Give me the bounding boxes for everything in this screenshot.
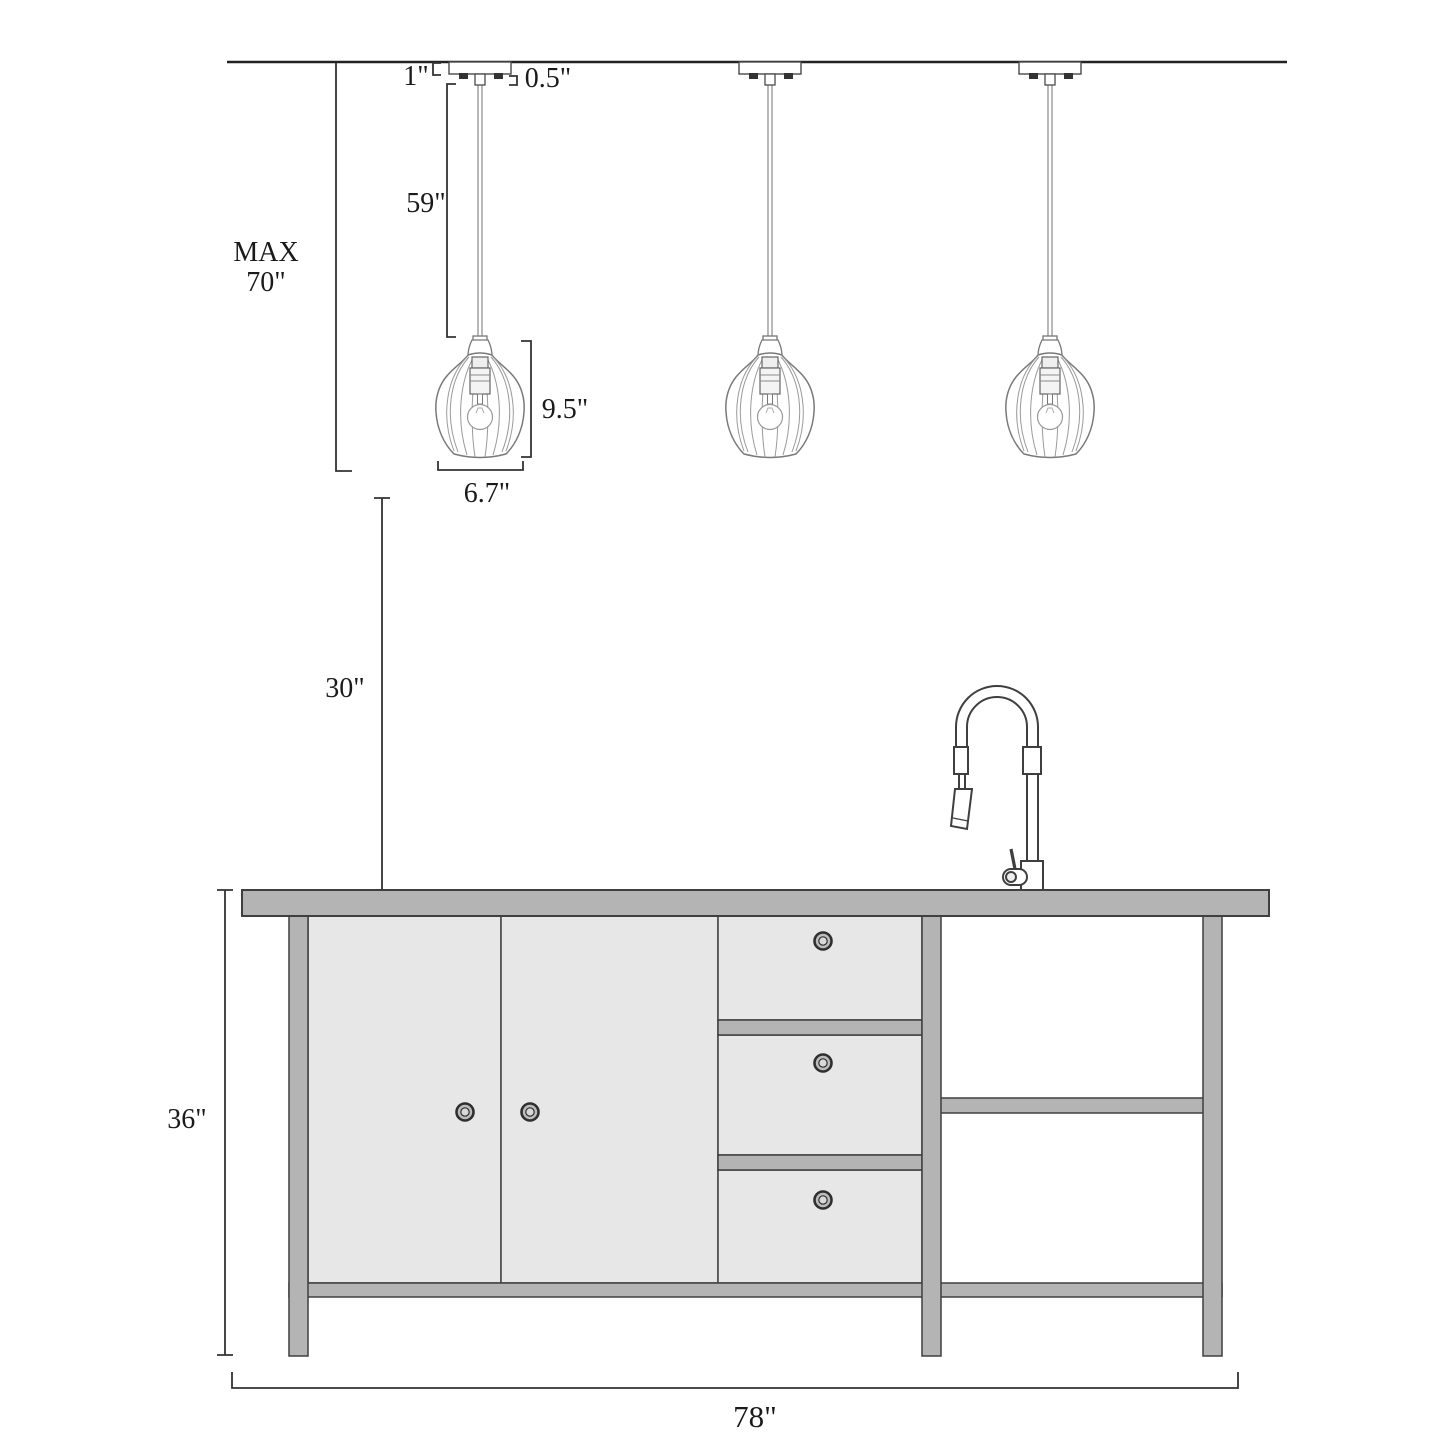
kitchen-faucet (951, 686, 1043, 890)
pendant-light-2 (726, 62, 814, 458)
countertop (242, 890, 1269, 916)
left-leg (289, 916, 308, 1356)
right-leg (1203, 916, 1222, 1356)
label-max-height-1: MAX (233, 237, 298, 268)
pendant-light-3 (1006, 62, 1094, 458)
drawer-separator-1 (718, 1020, 922, 1035)
dim-bracket-67in (438, 461, 523, 470)
bottom-rail (289, 1283, 1222, 1297)
faucet-handle-cap (1006, 872, 1016, 882)
faucet-sleeve (1023, 747, 1041, 774)
dim-line-max70 (336, 63, 352, 471)
hose (959, 774, 965, 790)
label-hang-clearance: 30" (325, 673, 364, 704)
label-cord-length: 59" (406, 188, 445, 219)
label-shade-height: 9.5" (542, 394, 588, 425)
label-island-height: 36" (167, 1104, 206, 1135)
dim-line-30in (374, 498, 390, 889)
door-knob-left (457, 1104, 474, 1121)
drawer-knob-1 (815, 933, 832, 950)
label-shade-width: 6.7" (464, 478, 510, 509)
dim-bracket-1in (433, 63, 441, 75)
pendant-light-1 (436, 62, 524, 458)
label-canopy-height: 1" (403, 61, 428, 92)
dim-line-36in (217, 890, 233, 1355)
label-island-width: 78" (733, 1399, 777, 1434)
faucet-lever (1011, 849, 1015, 869)
drawer-1 (718, 916, 922, 1020)
cabinet-door-right (501, 916, 718, 1283)
drawer-2 (718, 1035, 922, 1155)
dim-line-78in (232, 1372, 1238, 1388)
spray-head (951, 789, 972, 829)
hose-connector (954, 747, 968, 774)
cabinet-door-left (308, 916, 501, 1283)
open-shelf (936, 1098, 1208, 1113)
drawer-3 (718, 1170, 922, 1283)
label-stem-height: 0.5" (525, 63, 571, 94)
dimension-diagram: 1" 0.5" 59" MAX 70" 9.5" 6.7" 30" 36" 78… (0, 0, 1445, 1445)
middle-post (922, 916, 941, 1356)
kitchen-island (242, 890, 1269, 1356)
dim-bracket-05in (509, 76, 517, 85)
drawer-knob-3 (815, 1192, 832, 1209)
faucet-column (1027, 774, 1038, 874)
label-max-height-2: 70" (246, 267, 285, 298)
drawer-separator-2 (718, 1155, 922, 1170)
diagram-svg: 1" 0.5" 59" MAX 70" 9.5" 6.7" 30" 36" 78… (0, 0, 1445, 1445)
drawer-knob-2 (815, 1055, 832, 1072)
door-knob-right (522, 1104, 539, 1121)
dim-bracket-59in (447, 84, 456, 337)
faucet-gooseneck (956, 686, 1038, 752)
